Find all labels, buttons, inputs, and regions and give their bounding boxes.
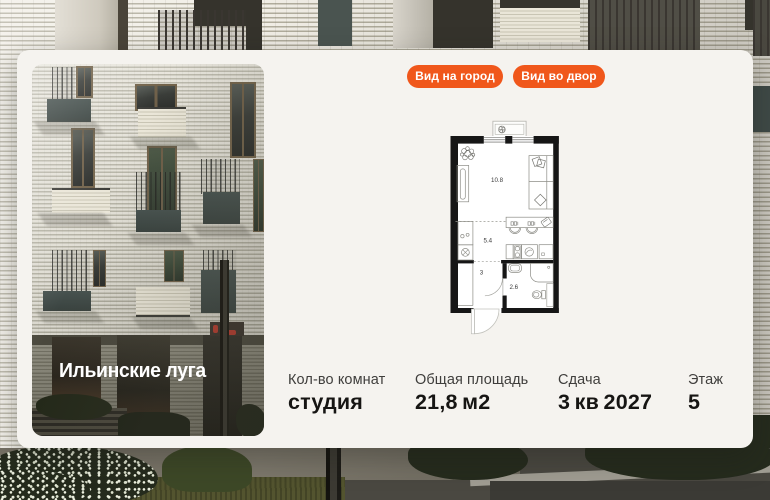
svg-text:10.8: 10.8: [491, 177, 504, 184]
svg-text:2.6: 2.6: [510, 284, 519, 291]
svg-text:5.4: 5.4: [484, 238, 493, 245]
svg-text:3: 3: [480, 269, 484, 276]
